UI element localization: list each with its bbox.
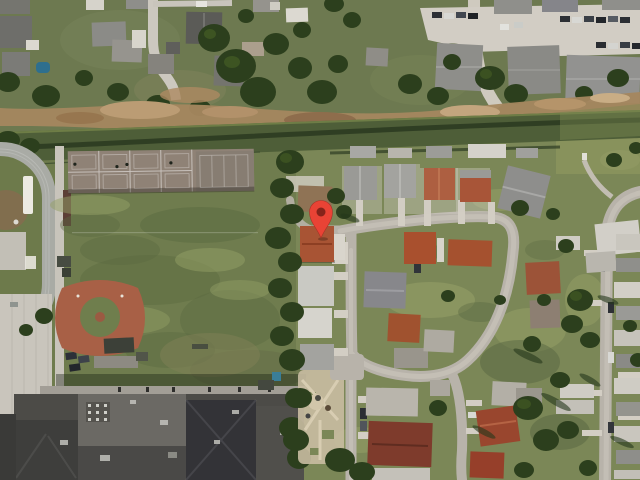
satellite-map-canvas[interactable]: [0, 0, 640, 480]
map-pin[interactable]: [303, 196, 341, 244]
school-building: [0, 372, 311, 480]
street-apron: [330, 354, 364, 380]
pin-body-icon: [310, 201, 333, 239]
pin-dot-icon: [317, 208, 326, 217]
dark-red-home: [367, 421, 432, 467]
path-post: [582, 153, 587, 160]
swimming-pool: [36, 62, 50, 73]
sport-courts: [68, 149, 255, 195]
pin-shadow: [318, 237, 328, 241]
